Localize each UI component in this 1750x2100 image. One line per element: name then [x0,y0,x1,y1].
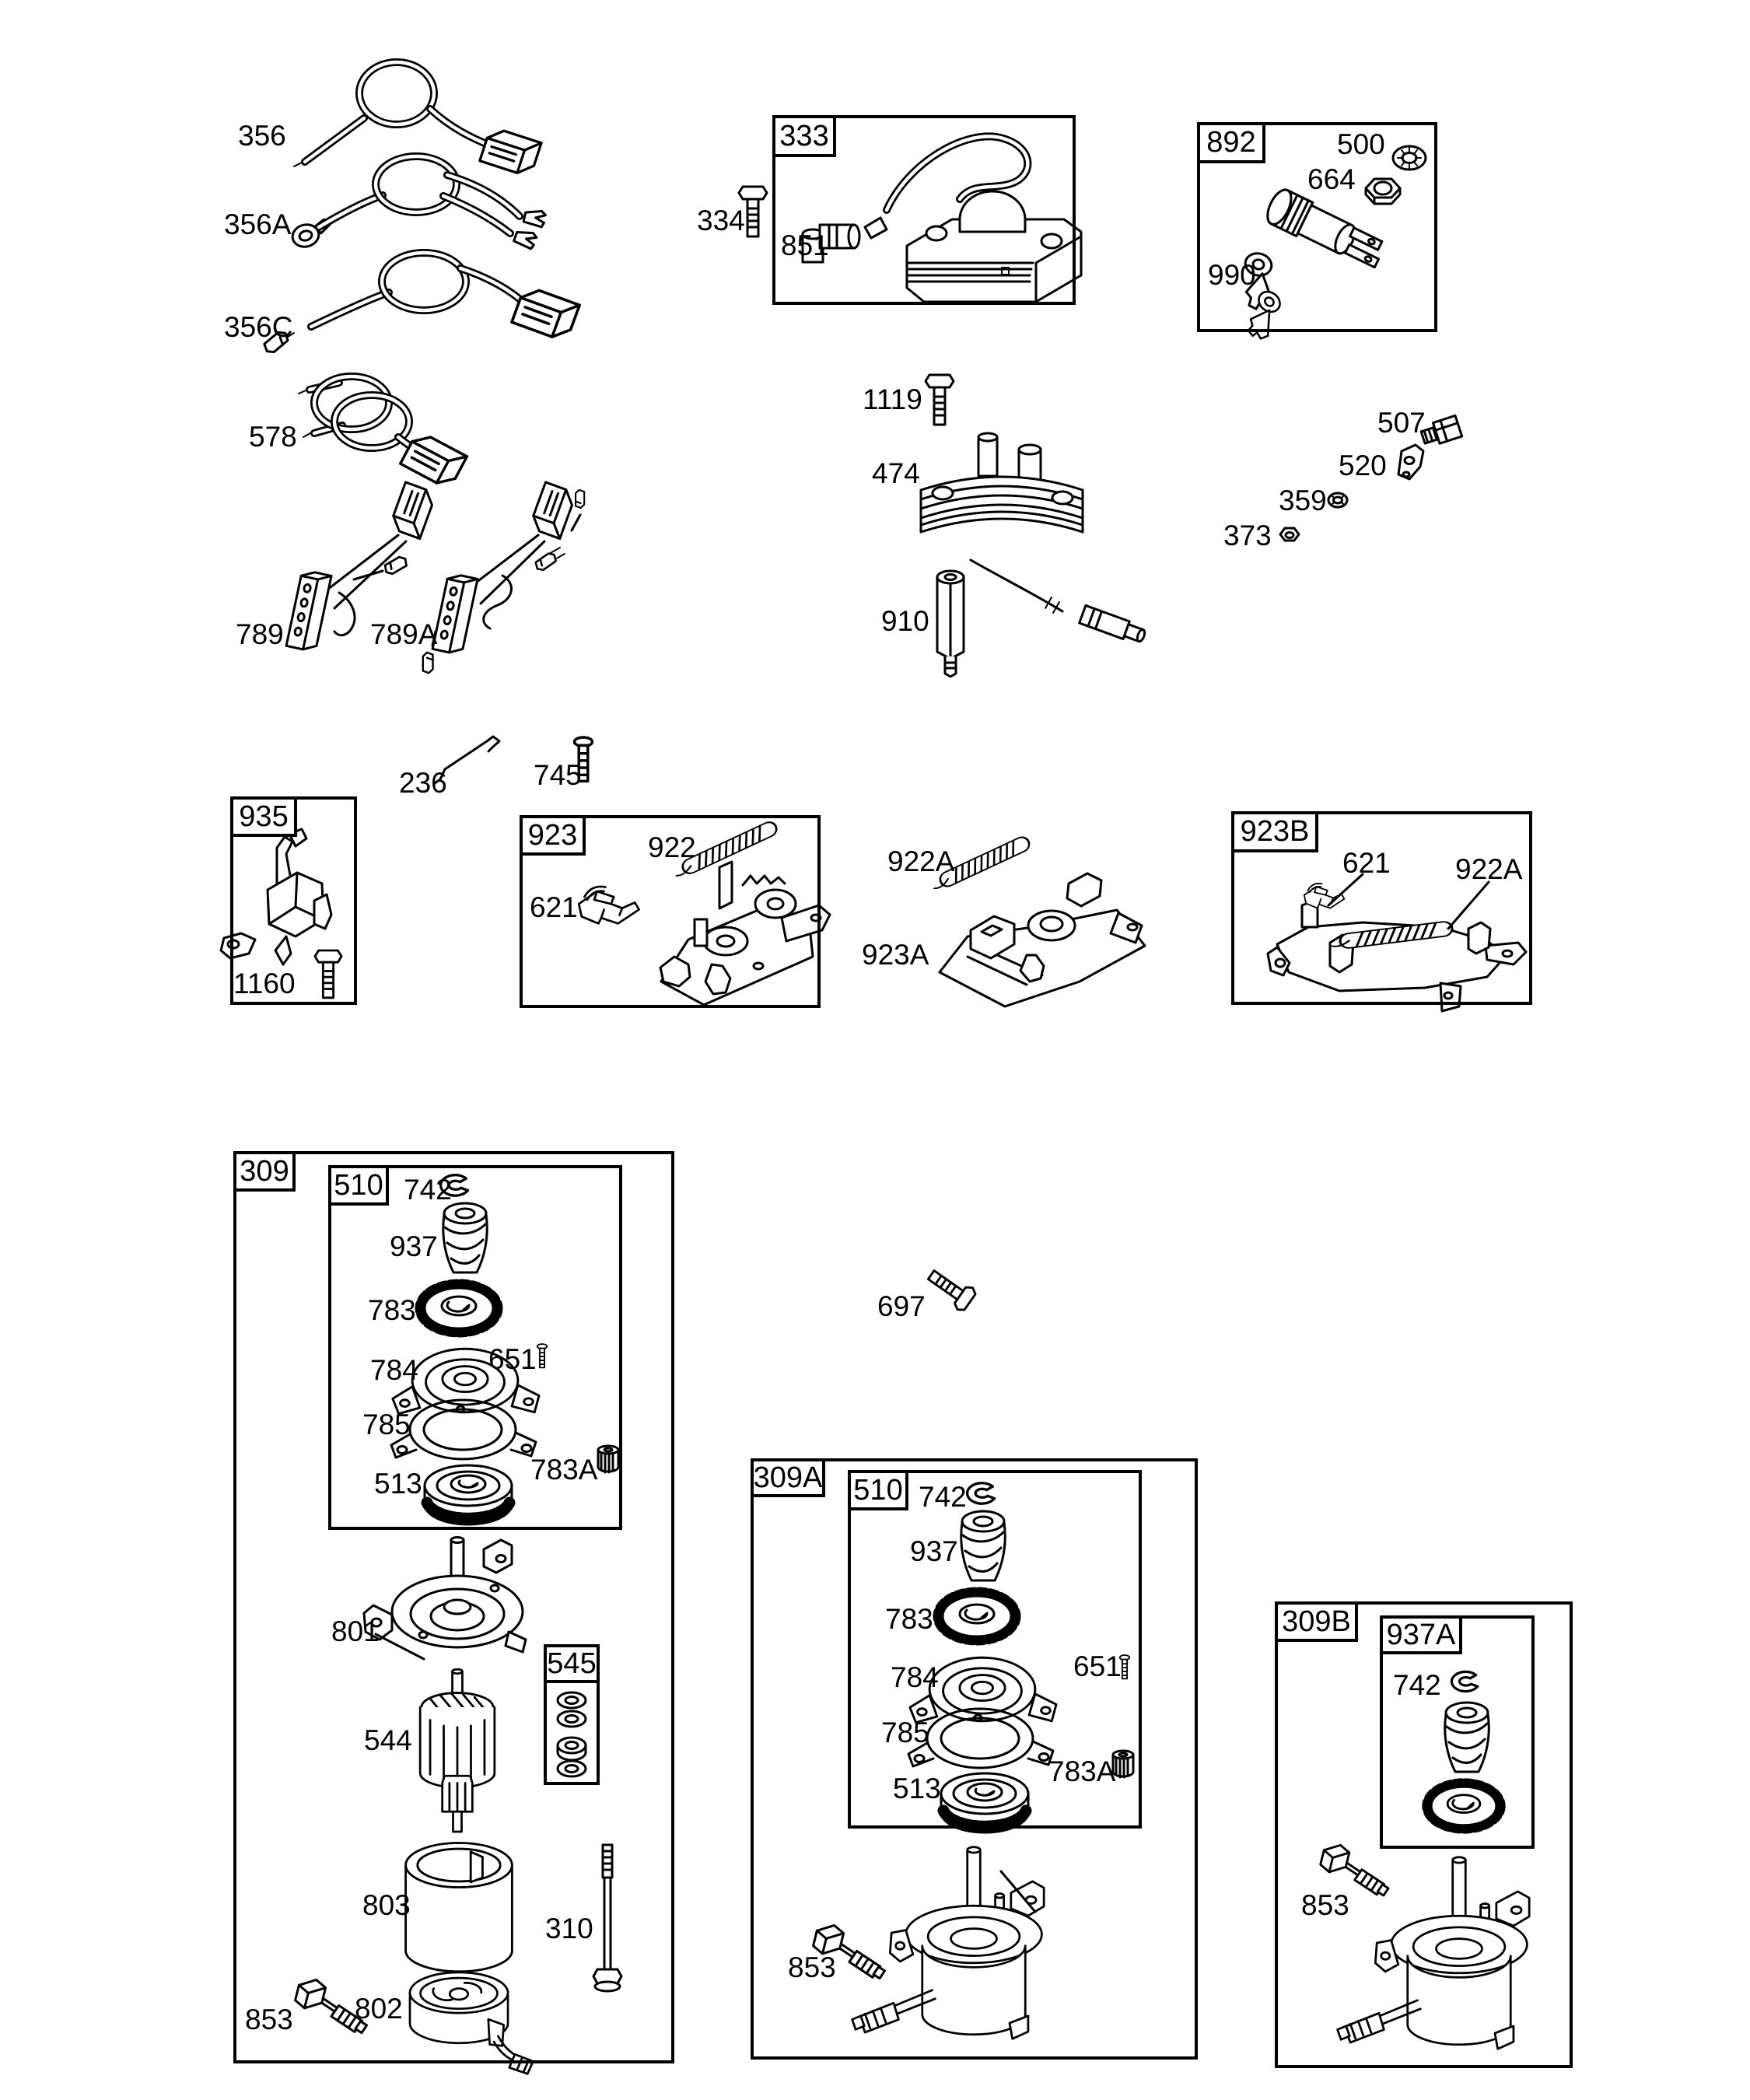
group-box-label-309: 309 [236,1154,296,1192]
part-label-507: 507 [1377,408,1426,439]
part-label-359: 359 [1279,486,1327,516]
part-label-783-309a: 783 [885,1605,933,1635]
part-label-785-309a: 785 [881,1718,929,1748]
group-box-label-935: 935 [233,800,297,837]
part-label-742-309b: 742 [1393,1671,1441,1701]
group-box-label-937A: 937A [1383,1619,1462,1654]
part-label-853-309a: 853 [788,1953,836,1983]
group-box-333: 333 [772,115,1076,305]
group-box-label-923: 923 [523,818,586,856]
part-label-651-309a: 651 [1073,1652,1122,1682]
part-label-853-309b: 853 [1301,1891,1349,1921]
part-label-937-309: 937 [390,1232,438,1262]
part-label-334: 334 [697,206,745,236]
switch-507-drawing [1419,415,1461,447]
part-label-783a-309a: 783A [1048,1757,1115,1787]
kill-wire-474-drawing [971,560,1147,646]
bolt-697-drawing [923,1264,977,1313]
part-label-851: 851 [781,231,829,261]
part-label-513-309: 513 [374,1469,422,1500]
part-label-990: 990 [1208,261,1256,291]
part-label-802: 802 [355,1994,403,2025]
part-label-922a-mid: 922A [887,847,954,877]
wire-578-drawing [299,376,467,490]
harness-789a-drawing [418,482,589,674]
part-label-853-309: 853 [245,2005,293,2035]
part-label-356c: 356C [224,313,292,343]
part-label-697: 697 [877,1292,926,1322]
group-box-label-309A: 309A [754,1461,825,1497]
part-label-784-309: 784 [370,1356,418,1386]
part-label-310: 310 [545,1914,593,1944]
ignition-armature-474-drawing [921,433,1083,532]
bracket-520-drawing [1398,445,1423,479]
part-label-544: 544 [364,1726,412,1756]
bolt-1119-drawing [926,375,954,425]
part-label-789: 789 [236,620,284,650]
part-label-621-923: 621 [530,893,578,923]
group-box-label-309B: 309B [1278,1605,1358,1642]
group-box-545: 545 [544,1644,600,1785]
nut-373-drawing [1280,528,1299,541]
part-label-910: 910 [881,607,929,637]
part-label-664: 664 [1307,165,1356,195]
part-label-356a: 356A [224,210,291,240]
part-label-785-309: 785 [362,1410,411,1440]
part-label-373: 373 [1223,521,1272,551]
part-label-651-309: 651 [488,1345,537,1375]
part-label-500: 500 [1337,130,1385,160]
parts-diagram-canvas: 333892935923923B309510545309A510309B937A… [0,0,1750,2100]
part-label-922: 922 [648,833,696,863]
wire-356c-drawing [262,253,579,354]
group-box-label-892: 892 [1200,125,1265,163]
part-label-803: 803 [362,1891,411,1921]
group-box-label-510A: 510 [851,1473,908,1510]
part-label-742-309: 742 [404,1175,452,1206]
part-label-923a: 923A [862,940,929,971]
group-box-label-545: 545 [547,1647,597,1683]
part-label-513-309a: 513 [893,1774,941,1804]
part-label-236: 236 [399,768,447,799]
part-label-1119: 1119 [863,385,922,415]
part-label-801: 801 [331,1617,380,1647]
group-box-label-510: 510 [331,1168,389,1206]
group-box-923B: 923B [1231,811,1532,1005]
part-label-520: 520 [1339,451,1387,481]
group-box-937A: 937A [1380,1615,1535,1849]
group-box-892: 892 [1197,122,1437,332]
brake-bracket-923a-drawing [940,873,1145,1006]
group-box-label-923B: 923B [1234,814,1318,852]
part-label-621-923b: 621 [1342,849,1391,879]
part-label-784-309a: 784 [891,1663,939,1693]
part-label-783a-309: 783A [530,1455,597,1486]
part-label-789a: 789A [370,620,437,650]
part-label-745: 745 [534,761,582,791]
part-label-578: 578 [249,422,297,453]
part-label-783-309: 783 [368,1296,416,1326]
part-label-1160: 1160 [233,969,296,999]
part-label-937-309a: 937 [910,1537,958,1567]
standoff-910-drawing [937,571,964,677]
part-label-742-309a: 742 [919,1482,967,1513]
part-label-356: 356 [238,121,286,152]
lock-washer-359-drawing [1328,493,1347,507]
part-label-474: 474 [872,459,920,489]
group-box-label-333: 333 [775,118,836,157]
part-label-922a-923b: 922A [1455,855,1522,885]
